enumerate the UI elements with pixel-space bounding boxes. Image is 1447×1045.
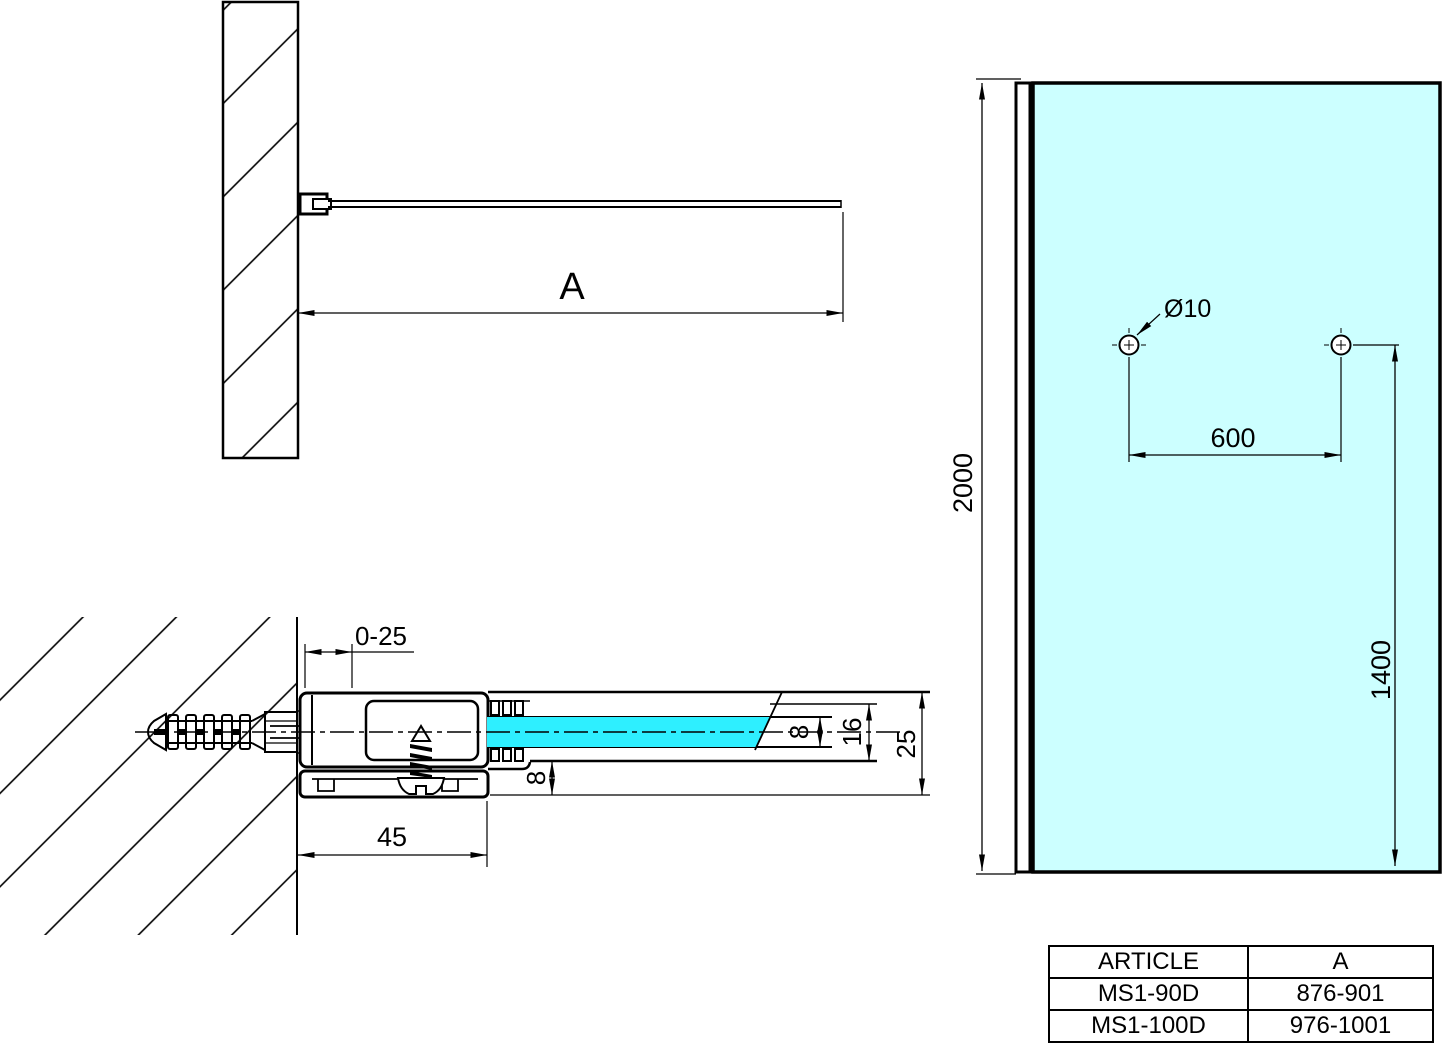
table-header-a: A xyxy=(1248,946,1433,978)
dim-a: A xyxy=(298,212,843,322)
dim-2000-label: 2000 xyxy=(948,453,978,513)
glass-panel-plan xyxy=(328,200,841,208)
dim-0-25: 0-25 xyxy=(305,621,414,688)
dim-a-label: A xyxy=(559,266,585,308)
drawing-svg: A xyxy=(0,0,1447,1045)
hole-diameter-label: Ø10 xyxy=(1164,295,1211,323)
table-cell-article: MS1-100D xyxy=(1049,1010,1248,1042)
dim-0-25-label: 0-25 xyxy=(355,621,407,651)
technical-drawing-page: A xyxy=(0,0,1447,1045)
dim-25-label: 25 xyxy=(891,730,921,759)
table-row: MS1-90D 876-901 xyxy=(1049,978,1433,1010)
dim-25: 25 xyxy=(891,692,922,795)
dim-8-bottom: 8 xyxy=(521,761,552,795)
wall-profile-front xyxy=(1016,83,1030,872)
section-view: 0-25 45 8 16 25 8 xyxy=(0,617,930,935)
dim-16: 16 xyxy=(837,704,869,761)
dim-16-label: 16 xyxy=(837,718,867,747)
glass-panel-front xyxy=(1033,83,1440,872)
dim-1400-label: 1400 xyxy=(1366,640,1396,700)
dim-8-glass-label: 8 xyxy=(784,725,814,739)
profile-bottom-cover xyxy=(300,771,488,797)
dim-45: 45 xyxy=(298,801,487,867)
dim-8-bottom-label: 8 xyxy=(521,771,551,785)
table-cell-a: 976-1001 xyxy=(1248,1010,1433,1042)
wall-profile-body xyxy=(300,693,488,767)
front-view: Ø10 600 1400 2000 xyxy=(948,79,1440,874)
table-cell-article: MS1-90D xyxy=(1049,978,1248,1010)
dim-45-label: 45 xyxy=(377,822,407,852)
spec-table: ARTICLE A MS1-90D 876-901 MS1-100D 976-1… xyxy=(1048,945,1434,1043)
wall-hatch-section xyxy=(0,617,297,935)
table-row: MS1-100D 976-1001 xyxy=(1049,1010,1433,1042)
table-cell-a: 876-901 xyxy=(1248,978,1433,1010)
dim-600-label: 600 xyxy=(1210,423,1255,453)
plan-view: A xyxy=(223,2,843,458)
wall-hatch-plan xyxy=(223,2,298,458)
wall-bracket-plan xyxy=(300,194,331,214)
table-header-row: ARTICLE A xyxy=(1049,946,1433,978)
table-header-article: ARTICLE xyxy=(1049,946,1248,978)
dim-2000: 2000 xyxy=(948,79,1021,874)
